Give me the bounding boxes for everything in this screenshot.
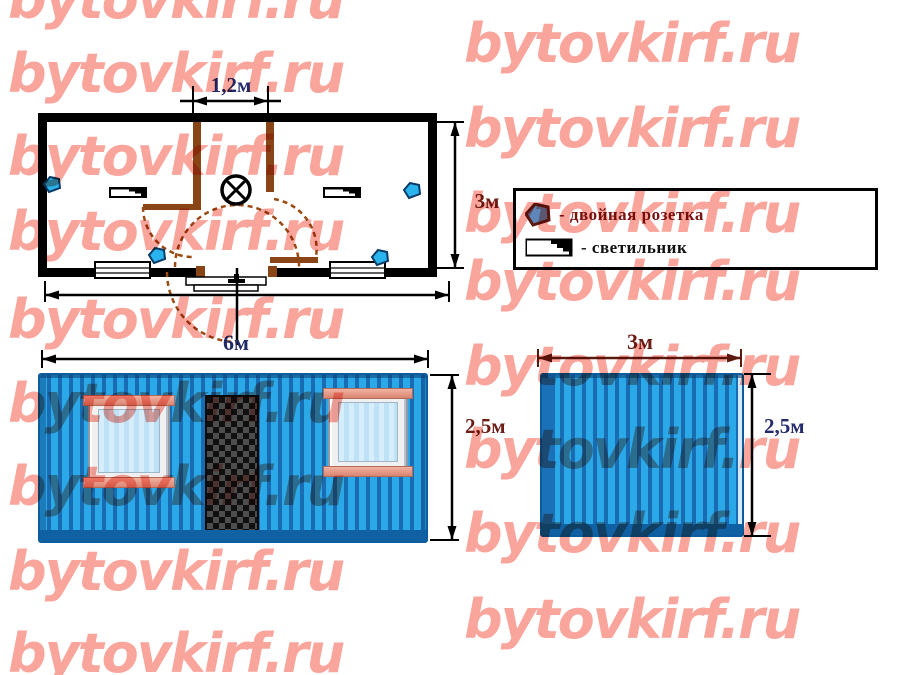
- window-glass: [338, 402, 398, 462]
- watermark-text: bytovkirf.ru: [464, 12, 799, 75]
- plan-door-arc-left: [143, 207, 193, 257]
- cabin-drawing-page: - двойная розетка - светильник: [0, 0, 900, 675]
- dimension-side-width: [538, 349, 741, 367]
- plan-door-threshold: [228, 274, 245, 283]
- watermark-text: bytovkirf.ru: [8, 540, 343, 603]
- window-sill-top: [83, 395, 175, 406]
- dimension-plan-width: [45, 281, 449, 302]
- watermark-text: bytovkirf.ru: [8, 200, 343, 263]
- floor-plan: [43, 118, 433, 346]
- plan-outer-wall: [43, 118, 433, 273]
- ceiling-lamp-icon: [222, 176, 250, 204]
- watermark-text: bytovkirf.ru: [8, 125, 343, 188]
- dim-label-side-height: 2,5м: [764, 414, 805, 438]
- plan-partition-left: [193, 122, 201, 210]
- base-trim: [40, 530, 426, 541]
- watermark-text: bytovkirf.ru: [8, 288, 343, 351]
- plan-porch-step: [194, 285, 258, 291]
- legend-row-light: - светильник: [525, 231, 875, 264]
- dim-label-front-width: 6м: [223, 330, 249, 355]
- light-fixture-icon-right: [323, 187, 361, 198]
- dimension-front-height: [430, 375, 459, 540]
- plan-door-leaf-left: [143, 204, 193, 210]
- base-trim: [542, 524, 742, 535]
- plan-entrance-arc-inner: [175, 205, 299, 267]
- watermark-text: bytovkirf.ru: [8, 42, 343, 105]
- dimension-side-height: [744, 374, 771, 536]
- plan-porch-step: [186, 277, 266, 285]
- dimension-plan-depth: [437, 122, 464, 268]
- light-fixture-icon: [525, 238, 573, 257]
- window-glass: [98, 409, 160, 473]
- watermark-text: bytovkirf.ru: [464, 588, 799, 651]
- front-elevation: [38, 373, 428, 543]
- window-sill-top: [323, 388, 413, 399]
- plan-window-left: [95, 262, 150, 278]
- dim-label-side-width: 3м: [627, 329, 653, 354]
- plan-partition-right: [266, 122, 274, 192]
- plan-entrance-jamb-left: [196, 266, 205, 277]
- window-sill-bottom: [323, 466, 413, 477]
- legend-light-label: - светильник: [581, 238, 687, 258]
- socket-icon: [44, 177, 60, 192]
- socket-icon: [149, 248, 165, 263]
- watermark-text: bytovkirf.ru: [8, 622, 343, 675]
- side-elevation: [540, 373, 744, 537]
- plan-door-arc-right: [274, 199, 317, 257]
- watermark-text: bytovkirf.ru: [464, 97, 799, 160]
- legend-row-socket: - двойная розетка: [525, 198, 875, 231]
- entrance-door: [205, 395, 259, 533]
- dim-label-door-width: 1,2м: [211, 73, 252, 97]
- socket-icon: [372, 250, 388, 265]
- window-sill-bottom: [83, 477, 175, 488]
- legend-box: - двойная розетка - светильник: [513, 188, 878, 270]
- dimension-door-width: [180, 86, 281, 116]
- watermark-text: bytovkirf.ru: [8, 0, 343, 31]
- socket-icon: [404, 183, 420, 198]
- plan-door-leaf-right: [270, 257, 318, 263]
- dimension-front-width: [42, 350, 428, 368]
- plan-window-right: [330, 262, 385, 278]
- light-fixture-icon-left: [109, 187, 147, 198]
- front-window-left: [88, 399, 170, 483]
- dim-label-plan-depth: 3м: [475, 189, 500, 213]
- double-socket-icon: [525, 203, 551, 227]
- plan-entrance-opening: [205, 266, 268, 278]
- dim-label-front-height: 2,5м: [465, 414, 506, 438]
- plan-entrance-arc-outer: [167, 272, 237, 342]
- legend-socket-label: - двойная розетка: [559, 205, 704, 225]
- technical-drawing: 1,2м 3м 6м: [0, 0, 900, 675]
- front-window-right: [328, 392, 408, 472]
- plan-entrance-jamb-right: [268, 266, 277, 277]
